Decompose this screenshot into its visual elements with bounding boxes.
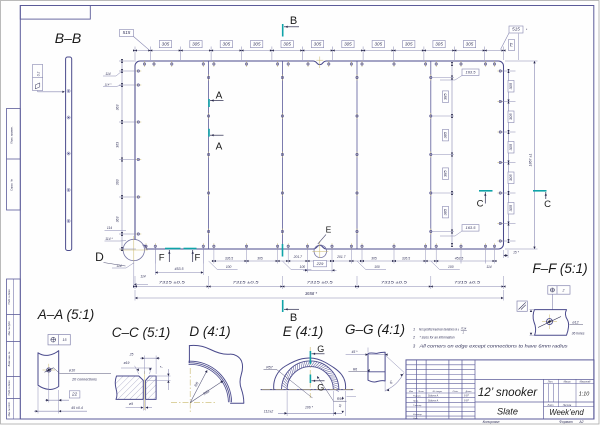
svg-text:515: 515 [123, 30, 131, 35]
svg-text:Пров.: Пров. [413, 400, 419, 402]
svg-text:453.5: 453.5 [455, 256, 464, 260]
svg-text:Масса: Масса [564, 382, 572, 384]
svg-text:7: 7 [160, 366, 164, 368]
svg-text:20 connections: 20 connections [71, 377, 97, 381]
svg-text:* sizes for an information: * sizes for an information [420, 336, 455, 340]
svg-text:7315 ±0.5: 7315 ±0.5 [233, 281, 259, 285]
svg-text:114: 114 [486, 265, 491, 269]
svg-text:363: 363 [116, 217, 120, 223]
svg-text:Масштаб: Масштаб [580, 382, 591, 384]
svg-text:Взам. инв. №: Взам. инв. № [8, 351, 11, 366]
svg-text:305: 305 [344, 41, 352, 46]
svg-text:305: 305 [162, 41, 170, 46]
svg-text:305: 305 [374, 41, 382, 46]
svg-text:100: 100 [226, 265, 232, 269]
svg-text:305: 305 [405, 41, 413, 46]
svg-text:Перв. примен.: Перв. примен. [10, 126, 14, 144]
svg-text:All corners on edge except con: All corners on edge except connections t… [418, 343, 569, 348]
svg-text:2: 2 [562, 288, 565, 292]
svg-text:453.5: 453.5 [175, 267, 184, 271]
svg-text:112±2: 112±2 [264, 409, 274, 413]
svg-text:385: 385 [443, 170, 448, 177]
svg-text:7315 ±0.5: 7315 ±0.5 [159, 281, 185, 285]
svg-text:201.7: 201.7 [293, 255, 302, 259]
svg-text:385: 385 [443, 208, 448, 215]
svg-text:100: 100 [448, 265, 454, 269]
svg-text:305: 305 [508, 113, 513, 120]
svg-text:163.5: 163.5 [465, 70, 476, 75]
svg-text:3658 *: 3658 * [305, 291, 317, 296]
svg-text:Подп. и дата: Подп. и дата [8, 380, 11, 396]
svg-text:B: B [290, 312, 297, 324]
svg-text:ø10: ø10 [69, 368, 75, 372]
svg-text:385: 385 [443, 131, 448, 138]
svg-text:305: 305 [466, 41, 474, 46]
svg-text:А2: А2 [578, 420, 583, 424]
svg-text:201.7: 201.7 [336, 255, 345, 259]
svg-text:R57: R57 [266, 365, 274, 369]
svg-text:515: 515 [512, 27, 520, 32]
svg-text:114: 114 [105, 72, 110, 76]
svg-text:114 *: 114 * [105, 83, 113, 87]
svg-text:C: C [544, 199, 551, 210]
svg-text:Not specified maximum deviatio: Not specified maximum deviations on ± [419, 328, 459, 332]
svg-text:305: 305 [253, 41, 261, 46]
svg-text:Slate: Slate [497, 407, 518, 417]
svg-text:305: 305 [508, 204, 513, 211]
svg-text:F: F [195, 253, 201, 264]
svg-text:45 *: 45 * [351, 350, 358, 354]
svg-text:106 *: 106 * [305, 406, 314, 410]
svg-text:326.5: 326.5 [225, 256, 233, 260]
svg-text:36 holes: 36 holes [572, 332, 585, 336]
svg-text:Инв. № дубл.: Инв. № дубл. [8, 320, 11, 335]
svg-text:305: 305 [283, 41, 291, 46]
svg-text:100: 100 [374, 265, 380, 269]
svg-text:114 *: 114 * [105, 237, 113, 241]
svg-text:100: 100 [300, 265, 306, 269]
svg-text:ø9: ø9 [129, 402, 133, 406]
svg-text:7315 ±0.5: 7315 ±0.5 [381, 281, 407, 285]
svg-text:F–F (5:1): F–F (5:1) [532, 261, 587, 276]
svg-text:Подп.: Подп. [453, 390, 459, 393]
svg-text:9.97: 9.97 [464, 399, 469, 402]
svg-text:305: 305 [435, 41, 443, 46]
svg-text:Копировал: Копировал [483, 420, 500, 424]
svg-text:15: 15 [63, 338, 67, 342]
svg-text:Лит.: Лит. [547, 382, 554, 384]
svg-text:45 ±0.4: 45 ±0.4 [71, 406, 83, 410]
svg-text:Подп. и дата: Подп. и дата [8, 289, 11, 305]
svg-text:IT14: IT14 [461, 326, 467, 330]
svg-text:7315 ±0.5: 7315 ±0.5 [307, 281, 333, 285]
svg-text:E: E [326, 225, 332, 235]
svg-text:Справ. №: Справ. № [10, 179, 14, 191]
svg-text:Лист: Лист [417, 391, 424, 393]
svg-text:№ докум.: № докум. [433, 390, 443, 393]
svg-text:163.5: 163.5 [465, 225, 476, 230]
svg-text:305: 305 [508, 82, 513, 89]
svg-text:305: 305 [257, 256, 263, 260]
svg-text:Листов: Листов [562, 405, 572, 407]
svg-text:A–A (5:1): A–A (5:1) [37, 307, 95, 322]
svg-text:385: 385 [443, 93, 448, 100]
svg-text:1867 ±1: 1867 ±1 [529, 154, 533, 167]
svg-text:229: 229 [316, 261, 324, 266]
svg-text:363: 363 [116, 179, 120, 185]
svg-text:114: 114 [107, 226, 112, 230]
svg-text:114: 114 [140, 275, 145, 279]
svg-text:R6: R6 [353, 367, 357, 371]
svg-text:E (4:1): E (4:1) [283, 324, 324, 339]
svg-text:D: D [95, 250, 104, 264]
svg-text:Н.контр.: Н.контр. [413, 414, 423, 416]
svg-text:Дата: Дата [465, 391, 473, 393]
svg-text:Утв.: Утв. [413, 418, 418, 420]
svg-text:1:10: 1:10 [579, 391, 590, 397]
svg-text:A: A [216, 91, 223, 102]
svg-text:12’ snooker: 12’ snooker [478, 386, 538, 399]
svg-text:9.97: 9.97 [464, 395, 469, 398]
svg-text:305: 305 [314, 41, 322, 46]
svg-text:1: 1 [413, 328, 415, 332]
svg-text:G–G (4:1): G–G (4:1) [345, 322, 405, 337]
svg-text:305: 305 [371, 256, 377, 260]
svg-text:25: 25 [129, 353, 134, 357]
svg-text:Sidorov A.: Sidorov A. [428, 399, 439, 402]
svg-text:305: 305 [508, 143, 513, 150]
svg-text:C: C [477, 199, 484, 210]
svg-text:363: 363 [116, 105, 120, 111]
svg-text:C–C (5:1): C–C (5:1) [112, 325, 171, 340]
svg-text:ø19: ø19 [124, 361, 130, 365]
svg-text:A: A [216, 142, 223, 153]
svg-text:Разраб.: Разраб. [413, 396, 421, 398]
svg-text:305: 305 [192, 41, 200, 46]
svg-text:G: G [317, 383, 324, 393]
svg-text:305: 305 [508, 174, 513, 181]
svg-text:G: G [317, 344, 324, 354]
svg-text:Sidorov A.: Sidorov A. [428, 395, 439, 398]
svg-text:B: B [290, 15, 297, 27]
svg-text:363: 363 [116, 142, 120, 148]
svg-text:Т.контр.: Т.контр. [413, 405, 422, 407]
svg-text:Лист: Лист [547, 405, 554, 407]
svg-text:Инв. № подл.: Инв. № подл. [8, 401, 11, 416]
svg-text:F: F [159, 253, 165, 264]
svg-text:Формат: Формат [559, 420, 573, 424]
svg-text:Изм: Изм [409, 391, 414, 393]
svg-text:0.2: 0.2 [37, 72, 41, 77]
svg-text:7315 ±0.5: 7315 ±0.5 [454, 281, 480, 285]
svg-text:B–B: B–B [55, 30, 81, 46]
svg-text:22: 22 [71, 392, 78, 397]
svg-text:Week’end: Week’end [549, 408, 584, 417]
svg-text:305: 305 [222, 41, 230, 46]
svg-text:326.5: 326.5 [402, 256, 410, 260]
svg-text:ø12: ø12 [572, 320, 578, 324]
svg-text:75: 75 [509, 42, 514, 47]
svg-text:D (4:1): D (4:1) [189, 324, 230, 339]
svg-text:15 *: 15 * [513, 251, 519, 255]
